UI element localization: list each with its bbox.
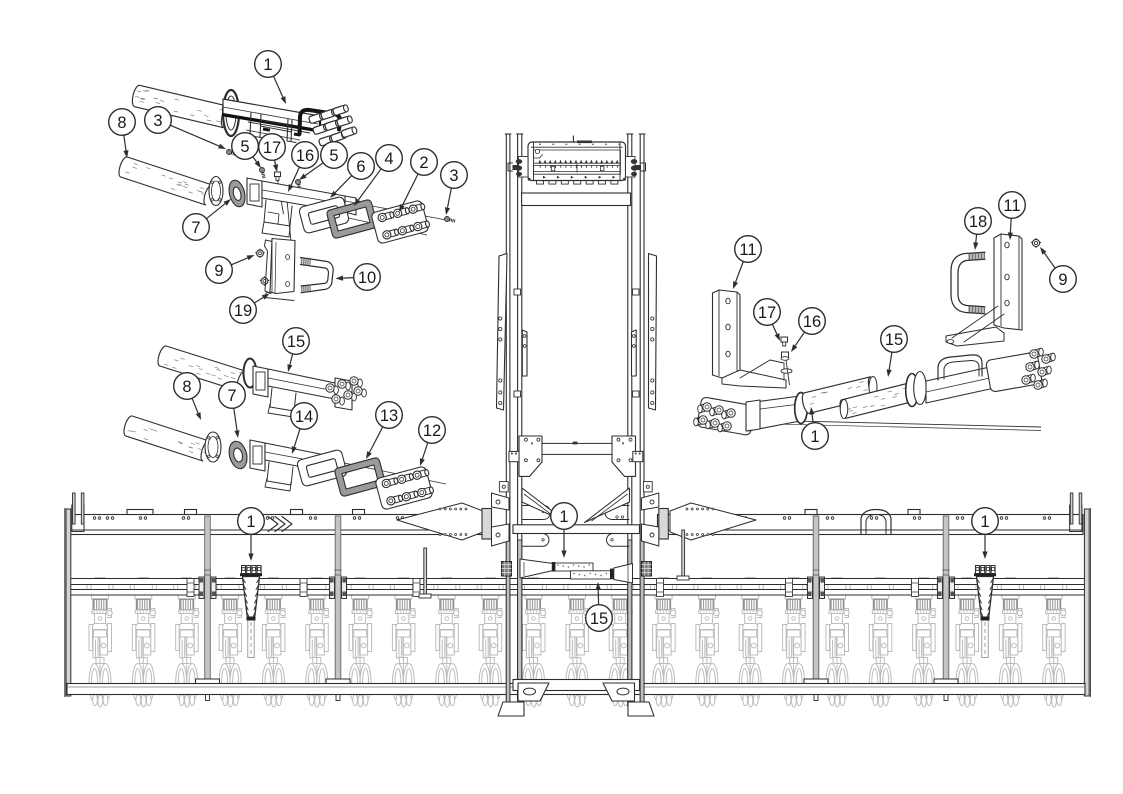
svg-text:3: 3 [153, 112, 162, 130]
svg-text:9: 9 [1058, 271, 1067, 289]
svg-text:8: 8 [182, 378, 191, 396]
svg-text:17: 17 [263, 139, 281, 157]
svg-text:11: 11 [1003, 197, 1020, 215]
svg-text:14: 14 [295, 408, 313, 426]
svg-text:9: 9 [214, 262, 223, 280]
svg-text:18: 18 [969, 213, 987, 231]
svg-text:16: 16 [296, 147, 314, 165]
svg-text:13: 13 [380, 407, 398, 425]
svg-text:7: 7 [191, 219, 200, 237]
svg-text:10: 10 [358, 269, 376, 287]
svg-text:2: 2 [419, 154, 428, 172]
svg-text:1: 1 [263, 56, 272, 74]
svg-text:1: 1 [246, 513, 255, 531]
svg-text:1: 1 [559, 508, 568, 526]
svg-text:11: 11 [739, 241, 756, 259]
svg-text:6: 6 [356, 158, 365, 176]
svg-text:5: 5 [329, 147, 338, 165]
svg-text:1: 1 [810, 428, 819, 446]
svg-text:12: 12 [423, 422, 441, 440]
svg-text:8: 8 [117, 114, 126, 132]
svg-text:19: 19 [234, 302, 252, 320]
svg-text:1: 1 [980, 513, 989, 531]
svg-text:15: 15 [590, 610, 608, 628]
svg-text:16: 16 [803, 313, 821, 331]
svg-text:15: 15 [885, 331, 903, 349]
svg-text:17: 17 [758, 304, 776, 322]
svg-text:3: 3 [449, 167, 458, 185]
svg-text:7: 7 [227, 387, 236, 405]
svg-text:4: 4 [384, 150, 393, 168]
svg-text:15: 15 [287, 333, 305, 351]
svg-text:5: 5 [240, 138, 249, 156]
